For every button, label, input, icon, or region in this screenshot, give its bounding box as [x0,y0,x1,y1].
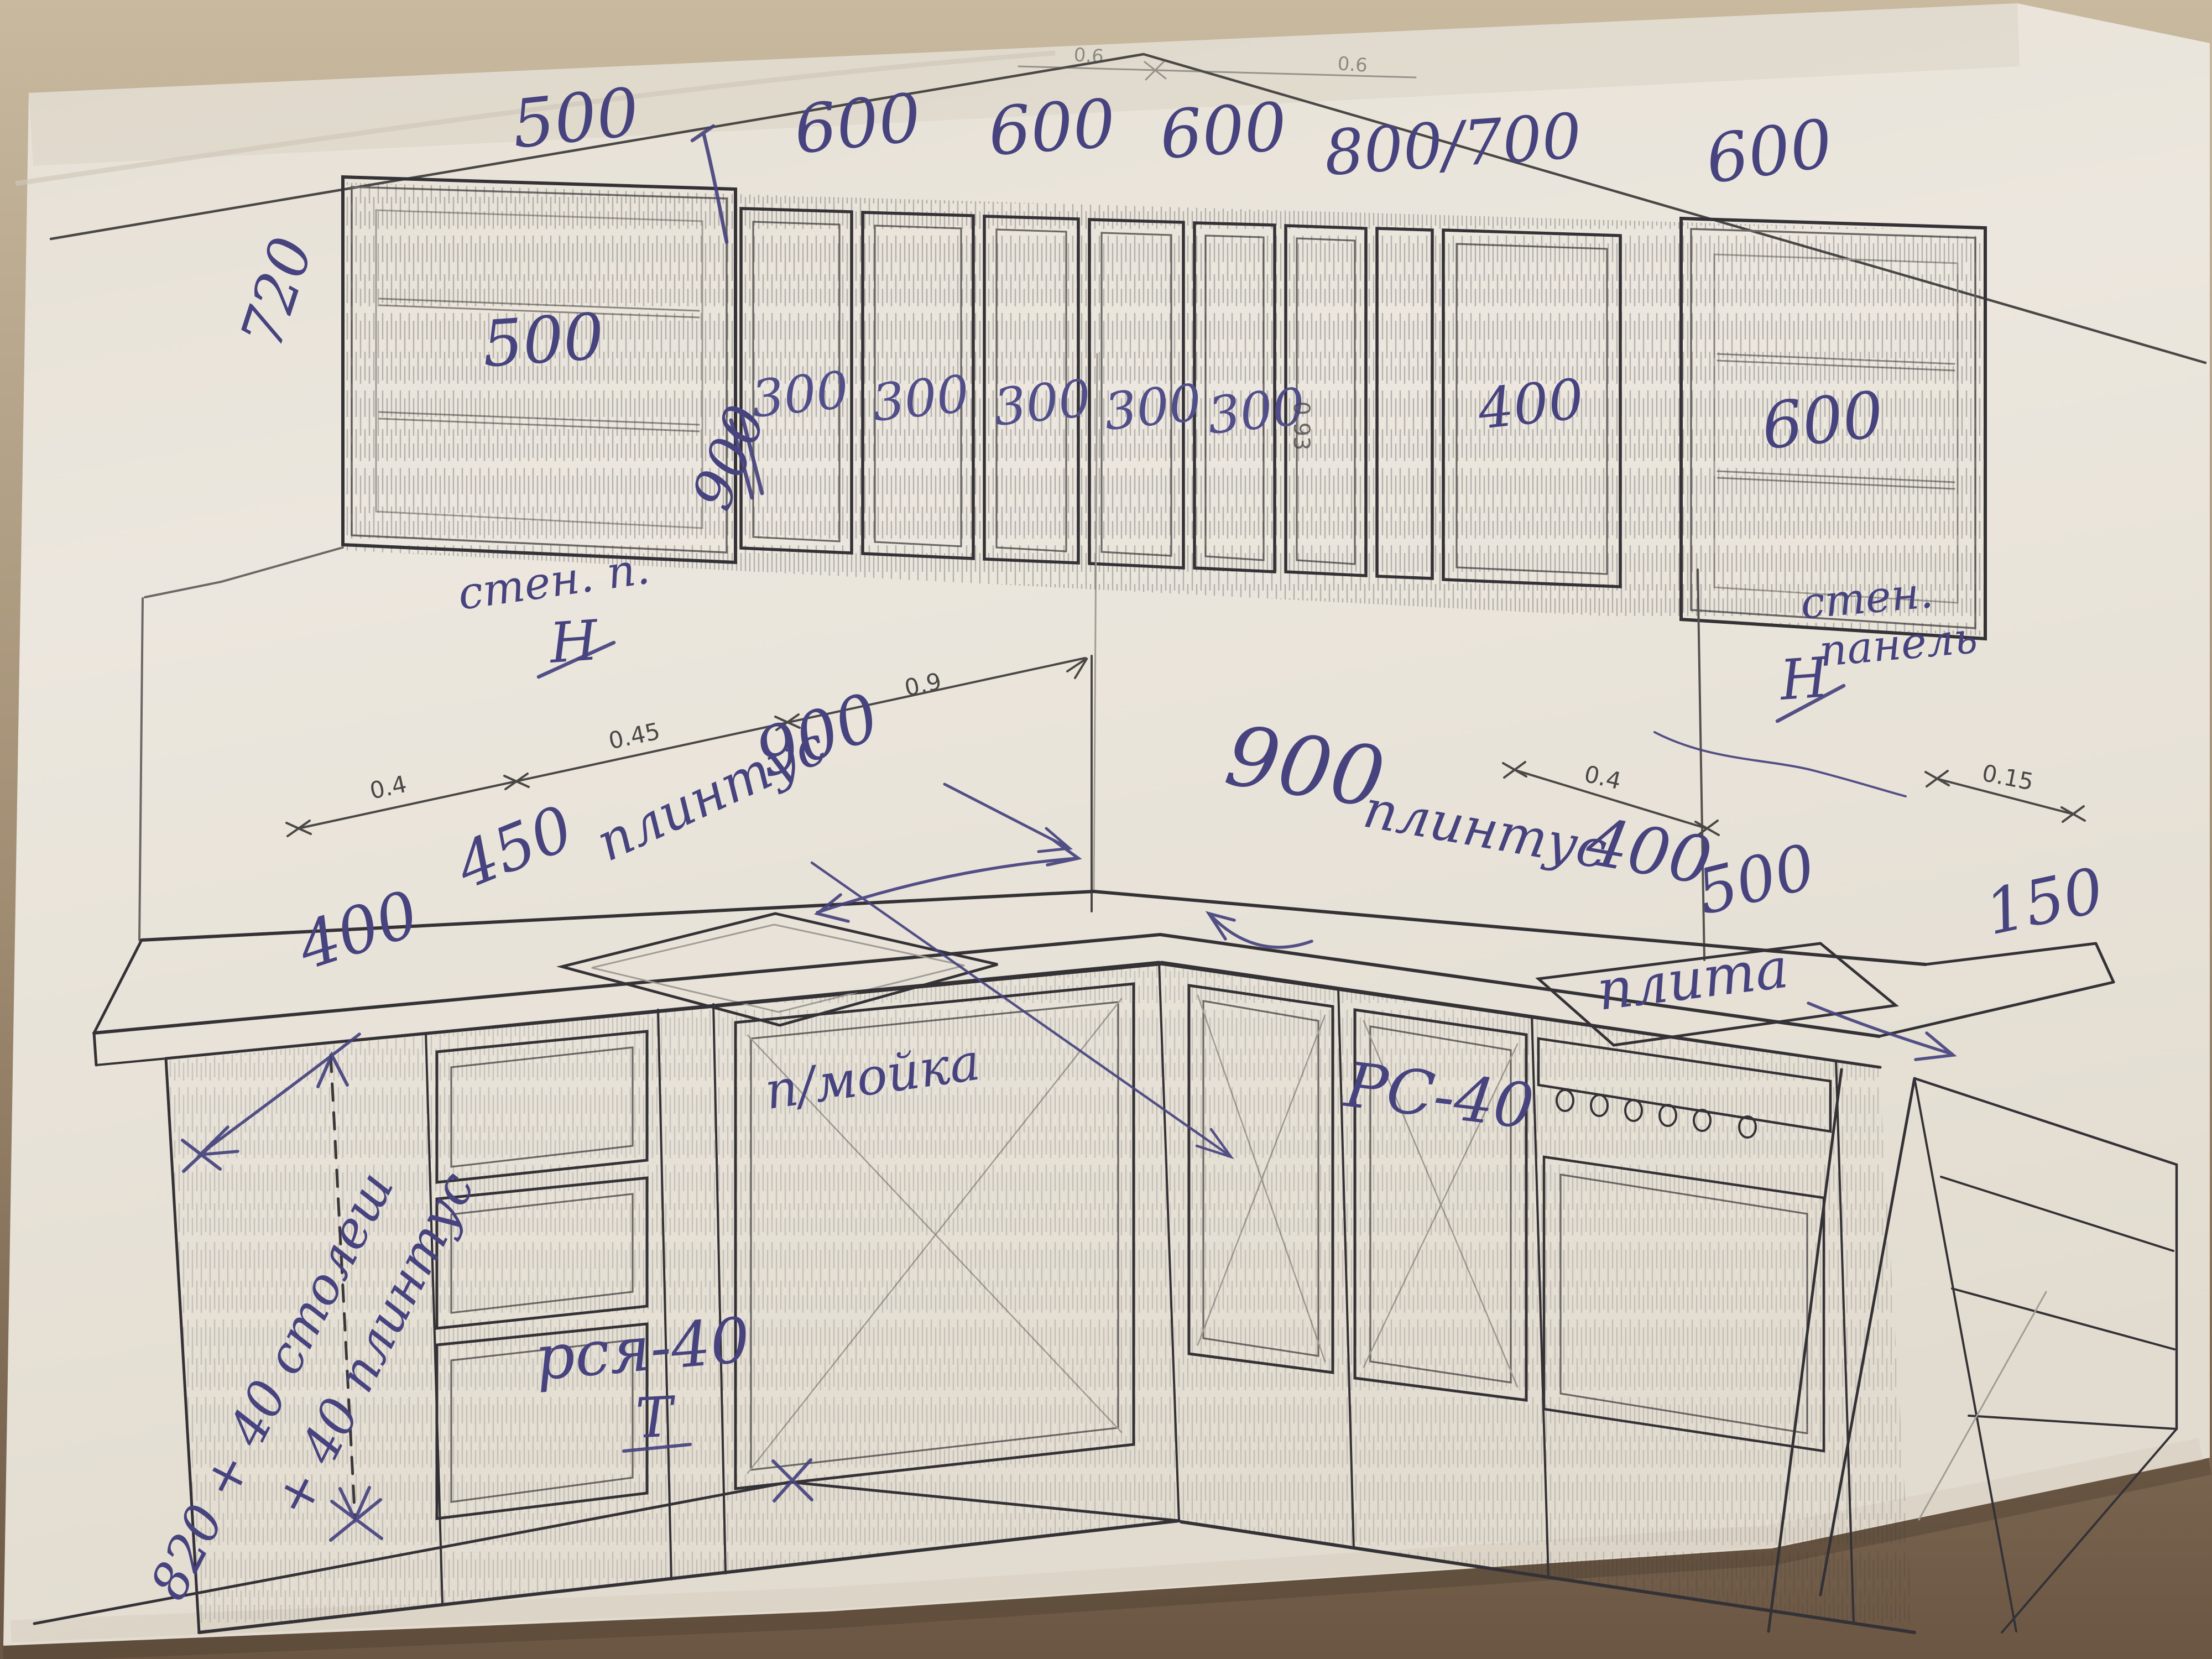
dim-06-b: 0.6 [1337,53,1368,77]
photo-of-kitchen-drawing: 500 600 600 600 800/700 600 720 500 900 … [0,0,2212,1659]
door-label-300: 300 [869,364,972,433]
wall-note-left-symbol: Н [546,608,601,676]
door-label-400: 400 [1474,367,1587,442]
wall-note-right-symbol: Н [1777,645,1832,713]
door-label-300: 300 [749,360,852,429]
dim-06-a: 0.6 [1073,44,1104,68]
door-label-300: 300 [1102,373,1204,442]
width-label: 600 [1157,88,1289,174]
door-label-600: 600 [1759,378,1887,464]
door-label-300: 300 [991,368,1094,437]
width-label: 600 [986,85,1118,171]
printed-height-093: 0.93 [1288,401,1314,450]
width-label: 600 [791,80,925,169]
door-label-500: 500 [480,300,606,382]
width-label: 500 [509,74,643,164]
drawer-unit-mark: Т [634,1384,678,1451]
kitchen-sketch-canvas: 500 600 600 600 800/700 600 720 500 900 … [0,0,2212,1659]
